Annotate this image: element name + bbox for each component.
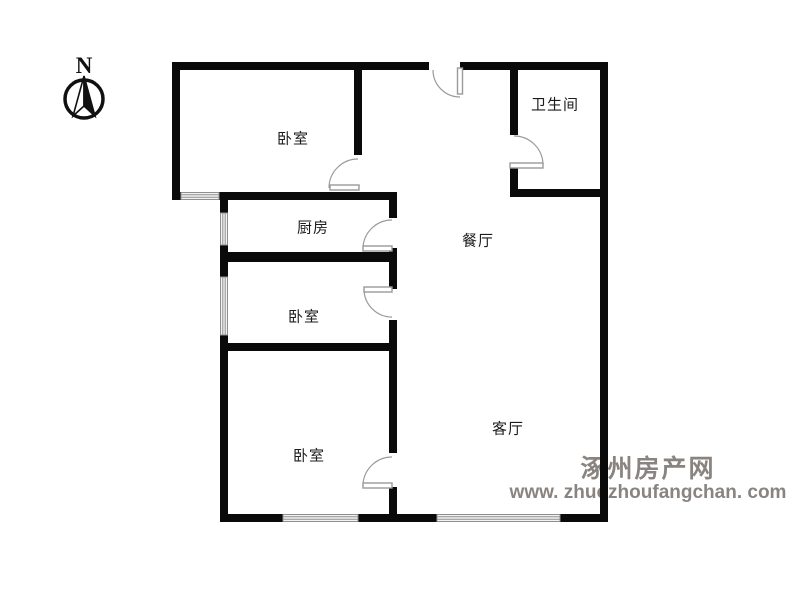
room-label-living: 客厅 — [492, 418, 524, 439]
room-label-kitchen: 厨房 — [297, 217, 329, 238]
room-label-bedroom-bottom: 卧室 — [293, 445, 325, 466]
label-layer: N 卧室 厨房 卧室 卧室 卫生间 餐厅 客厅 — [0, 0, 800, 600]
room-label-bedroom-middle: 卧室 — [288, 306, 320, 327]
compass-north-label: N — [76, 53, 93, 79]
room-label-bathroom: 卫生间 — [531, 94, 579, 115]
floor-plan-canvas: 涿州房产网 www. zhuozhoufangchan. com — [0, 0, 800, 600]
room-label-bedroom-top: 卧室 — [277, 128, 309, 149]
room-label-dining: 餐厅 — [462, 230, 494, 251]
